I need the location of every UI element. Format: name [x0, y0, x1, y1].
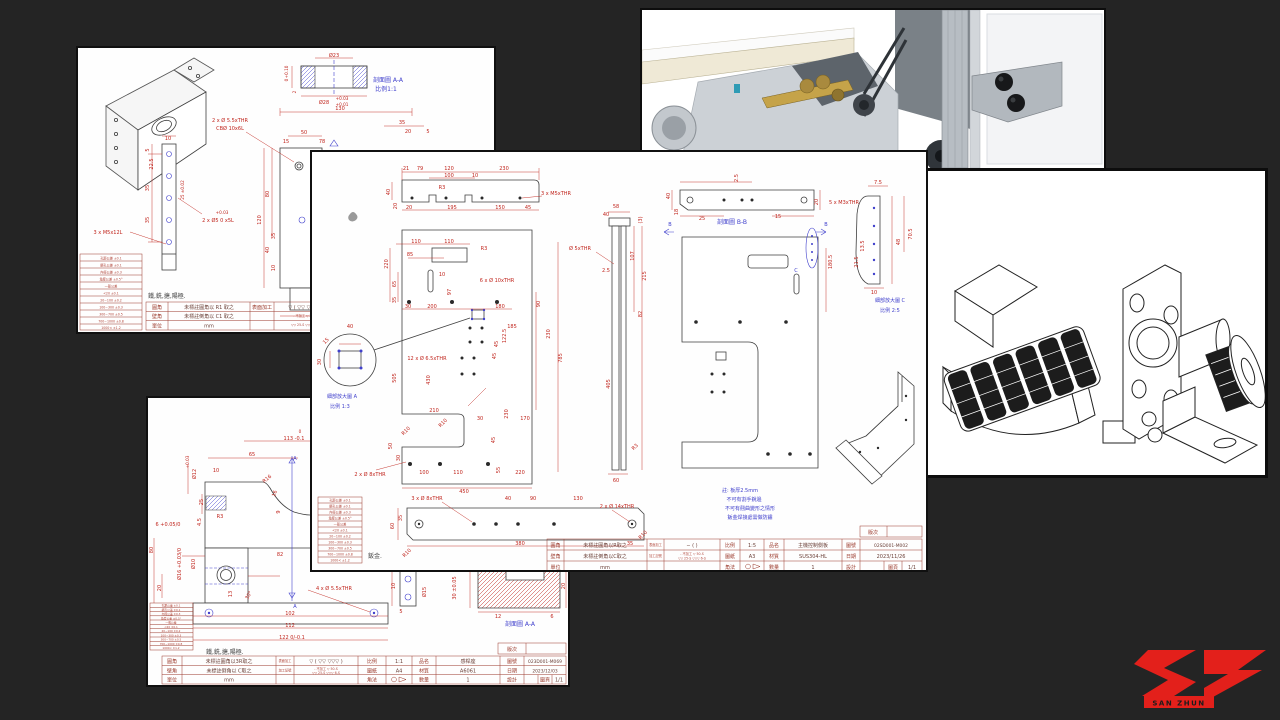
- dim-label: 90: [536, 301, 542, 307]
- brand-logo: SAN ZHUN: [1134, 650, 1270, 714]
- hole-callout: 12 x Ø 6.5xTHR: [407, 355, 447, 362]
- dim-label: 185: [507, 324, 517, 330]
- dim-label: 45: [491, 437, 497, 443]
- title-cell: 2023/12/03: [532, 668, 558, 674]
- hole-callout: CBØ 10x6L: [216, 125, 244, 132]
- title-cell: 圖號: [846, 542, 856, 549]
- dim-label: 90: [530, 496, 536, 502]
- title-cell: 角法: [725, 564, 735, 570]
- title-cell: 未標註倒角以 C1 取之: [184, 313, 234, 320]
- title-cell: 加工記號: [279, 668, 293, 673]
- tolerance-row: 孔距公差 ±0.1: [329, 498, 351, 503]
- dim-label: 45: [492, 353, 498, 359]
- tolerance-table: 孔距公差 ±0.1 鑽孔公差 ±0.1 內徑公差 ±0.3 角度公差 ±0.5°…: [150, 603, 193, 650]
- main-plate-view: [376, 230, 558, 488]
- dim-label: 25 ±0.02: [180, 180, 185, 200]
- section-mark: A: [293, 456, 297, 462]
- note-line: 不可有割手銳邊: [726, 496, 761, 503]
- tolerance-table: 孔距公差 ±0.1 鑽孔公差 ±0.1 內徑公差 ±0.3 角度公差 ±0.5°…: [80, 254, 142, 330]
- dim-label: 35: [398, 515, 404, 521]
- drawing-sheet-side-plate: 21 79 120 230 100 10 40 20 20 R3 195 150…: [310, 150, 928, 572]
- roller-assembly-line-render: [924, 168, 1268, 478]
- dim-label: 15: [775, 214, 781, 220]
- title-cell: 設計: [846, 564, 856, 570]
- dim-label: 79: [417, 166, 423, 172]
- dim-label: 200: [427, 304, 437, 310]
- brass-roller: [832, 89, 844, 101]
- knob-highlight: [1011, 98, 1016, 103]
- dim-label: (3): [638, 216, 644, 223]
- dim-label: 45: [494, 341, 500, 347]
- tolerance-row: 100~300 ±0.3: [328, 541, 352, 545]
- dim-label: 20: [393, 203, 399, 209]
- dim-label: 230: [504, 409, 510, 419]
- dim-label: 2.5: [602, 268, 610, 274]
- title-cell: 單位: [550, 564, 560, 570]
- dim-label: 55: [496, 467, 502, 473]
- tolerance-row: 300~700 ±0.5: [328, 547, 352, 551]
- hole-callout: 6 x Ø 10xTHR: [480, 277, 515, 284]
- dim-label: 102: [285, 611, 295, 617]
- dim-label: 100: [419, 470, 429, 476]
- dim-label: 40: [347, 324, 353, 330]
- slide-canvas: Ø23 +0.10 0 2 Ø28 +0.03 +0.01 剖面圖 A-A 比例…: [0, 0, 1280, 720]
- dim-label: 5: [145, 148, 151, 151]
- tolerance-table: 孔距公差 ±0.1 鑽孔公差 ±0.1 內徑公差 ±0.3 角度公差 ±0.5°…: [318, 497, 362, 563]
- dim-label: 82: [277, 552, 283, 558]
- title-cell: 1: [466, 678, 469, 684]
- note-line: 鈑金焊接處需做防鏽: [727, 514, 772, 521]
- title-cell: 品名: [419, 658, 429, 665]
- title-cell: 感桿座: [460, 658, 475, 665]
- bore-inner: [662, 116, 686, 140]
- title-cell: 壁角: [550, 553, 560, 560]
- knob-icon: [1007, 94, 1025, 112]
- title-cell: 圖號: [507, 658, 517, 665]
- dim-label: R3: [439, 185, 446, 191]
- hole-callout: 2 x Ø 14xTHR: [600, 503, 635, 510]
- title-cell: 表面加工: [252, 304, 272, 311]
- title-cell: 單位: [167, 677, 177, 684]
- dim-label: 2: [292, 90, 297, 93]
- title-cell: ▽ ( ▽▽ ▽▽▽ ): [309, 659, 342, 665]
- title-cell: 版次: [507, 646, 517, 653]
- title-cell: 圓角: [152, 304, 162, 311]
- tolerance-row: 700~1000 ±0.8: [98, 320, 124, 324]
- knob-highlight: [999, 77, 1004, 82]
- title-cell: 比例: [725, 542, 735, 549]
- detail-mark: C: [794, 268, 798, 274]
- tolerance-row: 一般公差: [334, 522, 347, 527]
- dim-label: 430: [426, 375, 432, 385]
- dim-label: 78: [319, 139, 325, 145]
- title-cell: 加工記號: [649, 553, 663, 558]
- dim-label: 16: [271, 490, 279, 498]
- dim-label: R10: [438, 418, 449, 429]
- dim-label: 40: [603, 212, 609, 218]
- sheet-center-graphic: 21 79 120 230 100 10 40 20 20 R3 195 150…: [312, 152, 926, 570]
- title-cell: SUS304-HL: [799, 554, 827, 560]
- title-cell: ▽▽ 25-S ▽▽▽ 6-S: [678, 557, 706, 561]
- hole-callout: 2 x Ø5 0 x5L: [202, 217, 234, 224]
- title-cell: - 不加工 ▽ 50-S: [680, 551, 703, 556]
- title-cell: 版次: [868, 529, 878, 536]
- dim-label: 10: [271, 265, 277, 271]
- dim-label: 785: [558, 353, 564, 363]
- section-mark: A: [293, 604, 297, 610]
- title-cell: 主機控制側板: [798, 542, 828, 549]
- title-cell: mm: [600, 565, 610, 570]
- dim-label: 13.5: [860, 240, 866, 251]
- dim-label: 107: [630, 251, 636, 261]
- dim-label: 45: [525, 205, 531, 211]
- dim-label: R3: [631, 443, 640, 452]
- title-cell: 1:1: [395, 659, 403, 665]
- section-label: 剖面圖 A-A: [505, 620, 536, 628]
- dim-label: 10: [391, 583, 397, 589]
- title-cell: 2023/11/26: [877, 554, 906, 560]
- dim-label: 6 +0.05/0: [156, 522, 181, 528]
- detail-c-view: [856, 186, 904, 288]
- dim-label: 210: [429, 408, 439, 414]
- dim-label: 70.5: [908, 228, 914, 239]
- dim-label: 30: [396, 455, 402, 461]
- third-angle-symbol: [746, 564, 760, 569]
- tolerance-row: 20~100 ±0.2: [100, 299, 122, 303]
- isometric-part-view: [836, 372, 914, 484]
- dim-label: 40: [386, 189, 392, 195]
- title-cell: A6061: [460, 668, 476, 674]
- title-cell: mm: [224, 678, 234, 684]
- dim-label: 405: [606, 379, 612, 389]
- dim-label: 215: [642, 271, 648, 281]
- hole-callout: 5 x M3xTHR: [829, 200, 860, 206]
- machine-assembly-render: [640, 8, 1106, 170]
- title-cell: 1:5: [748, 543, 756, 549]
- title-cell: 壁角: [152, 313, 162, 320]
- dim-label: R10: [402, 548, 413, 559]
- dim-label: 505: [392, 373, 398, 383]
- title-cell: 1: [811, 565, 814, 570]
- dim-label: 112: [285, 623, 295, 629]
- dim-label: 18: [674, 209, 680, 215]
- tolerance-row: 300~700 ±0.5: [99, 313, 123, 317]
- tolerance-row: 鑽孔公差 ±0.1: [329, 504, 351, 509]
- title-cell: 單位: [152, 323, 162, 330]
- dim-label: 180.5: [828, 255, 834, 269]
- title-cell: A4: [396, 668, 403, 674]
- dim-label: +0.03: [185, 455, 190, 468]
- hole-callout: Ø 5xTHR: [569, 245, 591, 252]
- tolerance-row: 700~1000 ±0.8: [327, 553, 353, 557]
- dim-label: 65: [392, 281, 398, 287]
- dim-label: 35: [392, 297, 398, 303]
- dim-label: 20: [157, 585, 163, 591]
- dim-label: 20: [405, 129, 411, 135]
- dim-label: 380: [515, 541, 525, 547]
- dim-label: 10: [213, 468, 219, 474]
- title-cell: 未標註圓角以 R1 取之: [184, 304, 234, 311]
- process-note: 鐵,銑,搪,陽極.: [206, 648, 244, 656]
- tolerance-row: 角度公差 ±0.5°: [328, 516, 352, 521]
- dim-label: 10: [439, 272, 445, 278]
- dim-label: +0.10: [284, 65, 289, 78]
- tolerance-row: <20 ±0.1: [103, 292, 118, 296]
- tolerance-row: 鑽孔公差 ±0.1: [100, 263, 122, 268]
- dim-label: 0: [284, 78, 289, 81]
- section-mark: B: [824, 222, 828, 228]
- iso-bracket-view: [106, 58, 214, 190]
- dim-label: 35: [145, 217, 151, 223]
- side-profile-view: [608, 212, 642, 474]
- detail-scale-label: 比例 2:5: [880, 307, 900, 314]
- dim-label: 30: [317, 359, 323, 365]
- title-cell: 圓角: [550, 542, 560, 549]
- dim-label: 130: [573, 496, 583, 502]
- dim-label: 97: [447, 289, 453, 295]
- dim-label: R10: [401, 426, 412, 437]
- tolerance-row: 1000< ±1.2: [101, 326, 121, 330]
- tolerance-row: 一般公差: [105, 284, 118, 289]
- dim-label: Ø15: [421, 587, 428, 597]
- dim-label: 4.5: [197, 518, 203, 526]
- title-cell: mm: [204, 324, 214, 330]
- title-cell: 圓角: [167, 658, 177, 665]
- dim-label: 82: [638, 311, 644, 317]
- dim-label: 2.5: [734, 174, 740, 182]
- dim-label: Ø16 +0.03/0: [176, 548, 183, 580]
- dim-label: 122.5: [502, 329, 508, 343]
- dim-label: 20: [406, 205, 412, 211]
- top-strip-view: [392, 168, 542, 210]
- dim-label: 35: [145, 185, 151, 191]
- dim-label: 25: [199, 499, 205, 505]
- dim-label: 122 0/-0.1: [279, 635, 305, 641]
- dim-label: 450: [459, 489, 469, 495]
- title-cell: 023D001-M069: [528, 659, 562, 665]
- hole-callout: 3 x M5xTHR: [541, 191, 572, 197]
- dim-label: 130: [335, 106, 345, 112]
- dim-label: 85: [407, 252, 413, 258]
- tolerance-row: <20 ±0.1: [332, 529, 347, 533]
- detail-label: 細部放大圖 A: [327, 393, 358, 400]
- dim-label: 65: [249, 452, 255, 458]
- dim-label: 220: [515, 470, 525, 476]
- logo-z-glyph: [1204, 650, 1266, 702]
- tolerance-row: 1000< ±1.2: [162, 646, 179, 650]
- title-cell: 未標註倒角以 C取之: [206, 667, 251, 674]
- dim-label: 195: [447, 205, 457, 211]
- dim-label: R3: [481, 246, 488, 252]
- title-cell: 日期: [507, 668, 517, 674]
- dim-label: 50: [301, 130, 307, 136]
- tolerance-row: 1000< ±1.2: [330, 559, 350, 563]
- pulley-hub: [859, 100, 869, 110]
- flange-side-view: [392, 566, 432, 606]
- detail-label: 細部放大圖 C: [875, 297, 906, 304]
- title-cell: 圖紙: [725, 553, 735, 560]
- dim-label: 80: [149, 547, 155, 553]
- dim-label: 5: [426, 129, 429, 135]
- dim-label: 30: [477, 416, 483, 422]
- dim-label: 40: [666, 193, 672, 199]
- dim-label: 22.5: [149, 158, 155, 169]
- title-cell: 未標註圓角以R取之: [583, 542, 626, 549]
- title-cell: 表面加工: [649, 542, 663, 547]
- dim-label: 10: [165, 136, 171, 142]
- dim-label: 80: [265, 191, 271, 197]
- section-view-aa: [292, 58, 367, 96]
- dim-label: 10: [871, 290, 877, 296]
- dim-label: 100: [444, 173, 454, 179]
- dim-label: 150: [495, 205, 505, 211]
- title-cell: 表面加工: [279, 658, 293, 663]
- dim-label: 35: [627, 541, 633, 547]
- title-cell: 未標註圓角以3R取之: [206, 658, 253, 665]
- dim-label: 15: [283, 139, 289, 145]
- title-cell: 材質: [769, 553, 779, 560]
- dim-label: 21: [403, 166, 409, 172]
- dim-label: Ø10: [190, 559, 197, 569]
- hole-callout: 3 x Ø 8xTHR: [411, 495, 443, 502]
- section-scale-label: 比例1:1: [375, 85, 397, 93]
- assembly-render-graphic: [642, 10, 1104, 168]
- dim-label: 0: [299, 429, 302, 434]
- dim-label: 30: [405, 304, 411, 310]
- dim-label: 120: [444, 166, 454, 172]
- roller-render-graphic: [927, 171, 1265, 475]
- title-cell: 數量: [419, 677, 429, 684]
- section-mark: B: [668, 222, 672, 228]
- title-cell: 圖頁: [540, 678, 550, 684]
- dim-label: +0.03: [336, 96, 349, 101]
- title-cell: 角法: [367, 677, 377, 684]
- dim-label: 5: [399, 609, 402, 615]
- note-line: 註: 板厚2.5mm: [722, 487, 758, 494]
- dim-label: 35: [399, 120, 405, 126]
- dim-label: 20: [814, 199, 820, 205]
- title-cell: 1/1: [908, 565, 916, 570]
- title-cell: 圖紙: [367, 667, 377, 674]
- dim-label: +0.03: [216, 210, 229, 215]
- dim-label: 113 -0.1: [284, 436, 305, 442]
- dim-label: Ø28: [319, 99, 329, 106]
- dim-label: 170: [520, 416, 530, 422]
- dim-label: 58: [613, 204, 619, 210]
- title-cell: 02SD001-M002: [874, 543, 908, 549]
- knob-icon: [995, 73, 1013, 91]
- dim-label: 40: [505, 496, 511, 502]
- hole-callout: 2 x Ø 5.5xTHR: [212, 117, 249, 124]
- dim-label: R3: [217, 514, 224, 520]
- hole-callout: 3 x M5x12L: [94, 230, 123, 236]
- dim-label: 110: [453, 470, 463, 476]
- tolerance-row: 內徑公差 ±0.3: [329, 510, 351, 515]
- dim-label: 7.5: [874, 180, 882, 186]
- dim-label: 110: [411, 239, 421, 245]
- dim-label: R16: [262, 474, 273, 485]
- dim-label: 40: [265, 247, 271, 253]
- dim-label: Ø12: [191, 469, 198, 479]
- dim-label: 12: [495, 614, 501, 620]
- dim-label: 35: [271, 233, 277, 239]
- title-cell: 圖頁: [888, 565, 898, 570]
- dim-label: 10: [472, 173, 478, 179]
- title-cell: 設計: [507, 677, 517, 684]
- hole-callout: 2 x Ø 8xTHR: [354, 471, 386, 478]
- tolerance-row: 20~100 ±0.2: [329, 535, 351, 539]
- dim-label: 180: [495, 304, 505, 310]
- section-label: 剖面圖 B-B: [717, 218, 747, 226]
- title-cell: ▽▽ 25-S ▽▽▽ 6-S: [312, 671, 340, 675]
- dim-label: 30 ±0.05: [452, 576, 458, 599]
- title-cell: 未標註倒角以C取之: [583, 553, 627, 560]
- title-cell: 日期: [846, 554, 856, 560]
- dim-label: 110: [444, 239, 454, 245]
- title-cell: ∼ ( ): [686, 543, 697, 549]
- hole-callout: 4 x Ø 5.5xTHR: [316, 585, 353, 592]
- third-angle-symbol: [392, 677, 406, 682]
- brass-roller: [816, 75, 830, 89]
- dim-label: 230: [546, 329, 552, 339]
- viewcube-icon: [734, 84, 740, 93]
- tolerance-row: 內徑公差 ±0.3: [100, 270, 122, 275]
- title-cell: 1/1: [555, 678, 563, 684]
- detail-scale-label: 比例 1:3: [330, 403, 350, 410]
- title-cell: 比例: [367, 658, 377, 665]
- title-cell: 品名: [769, 542, 779, 549]
- dim-label: 13: [228, 591, 234, 597]
- dim-label: 50: [388, 443, 394, 449]
- dim-label: 220: [384, 259, 390, 269]
- logo-s-glyph: [1134, 650, 1196, 696]
- dim-label: 120: [257, 215, 263, 225]
- pan-cursor-icon: [348, 212, 357, 222]
- brand-logo-graphic: SAN ZHUN: [1134, 650, 1270, 714]
- dim-label: 230: [499, 166, 509, 172]
- title-cell: 材質: [419, 667, 429, 674]
- dim-label: 21.5: [854, 256, 860, 267]
- dim-label: 60: [613, 478, 619, 484]
- dim-label: 9: [276, 510, 282, 513]
- process-note: 鐵,銑,搪,陽極.: [148, 292, 186, 300]
- section-label: 剖面圖 A-A: [373, 76, 404, 84]
- dim-label: Ø23: [329, 52, 339, 59]
- tolerance-row: 孔距公差 ±0.1: [100, 256, 122, 261]
- title-cell: 數量: [769, 564, 779, 570]
- tolerance-row: 角度公差 ±0.5°: [99, 277, 123, 282]
- dim-label: 20: [561, 583, 567, 589]
- dim-label: 60: [390, 523, 396, 529]
- brass-roller: [800, 79, 814, 93]
- title-cell: A3: [749, 554, 756, 560]
- dim-label: 25: [699, 216, 705, 222]
- section-view-bb: [672, 182, 820, 216]
- c-plate-view: [664, 228, 826, 468]
- dim-label: 48: [896, 239, 902, 245]
- logo-brand-text: SAN ZHUN: [1152, 700, 1205, 708]
- sheet-metal-note: 鈑金.: [368, 552, 382, 560]
- note-line: 不可有翹曲變形之情形: [725, 505, 775, 512]
- dim-label: 6: [550, 614, 553, 620]
- tolerance-row: 100~300 ±0.3: [99, 306, 123, 310]
- title-cell: 壁角: [167, 667, 177, 674]
